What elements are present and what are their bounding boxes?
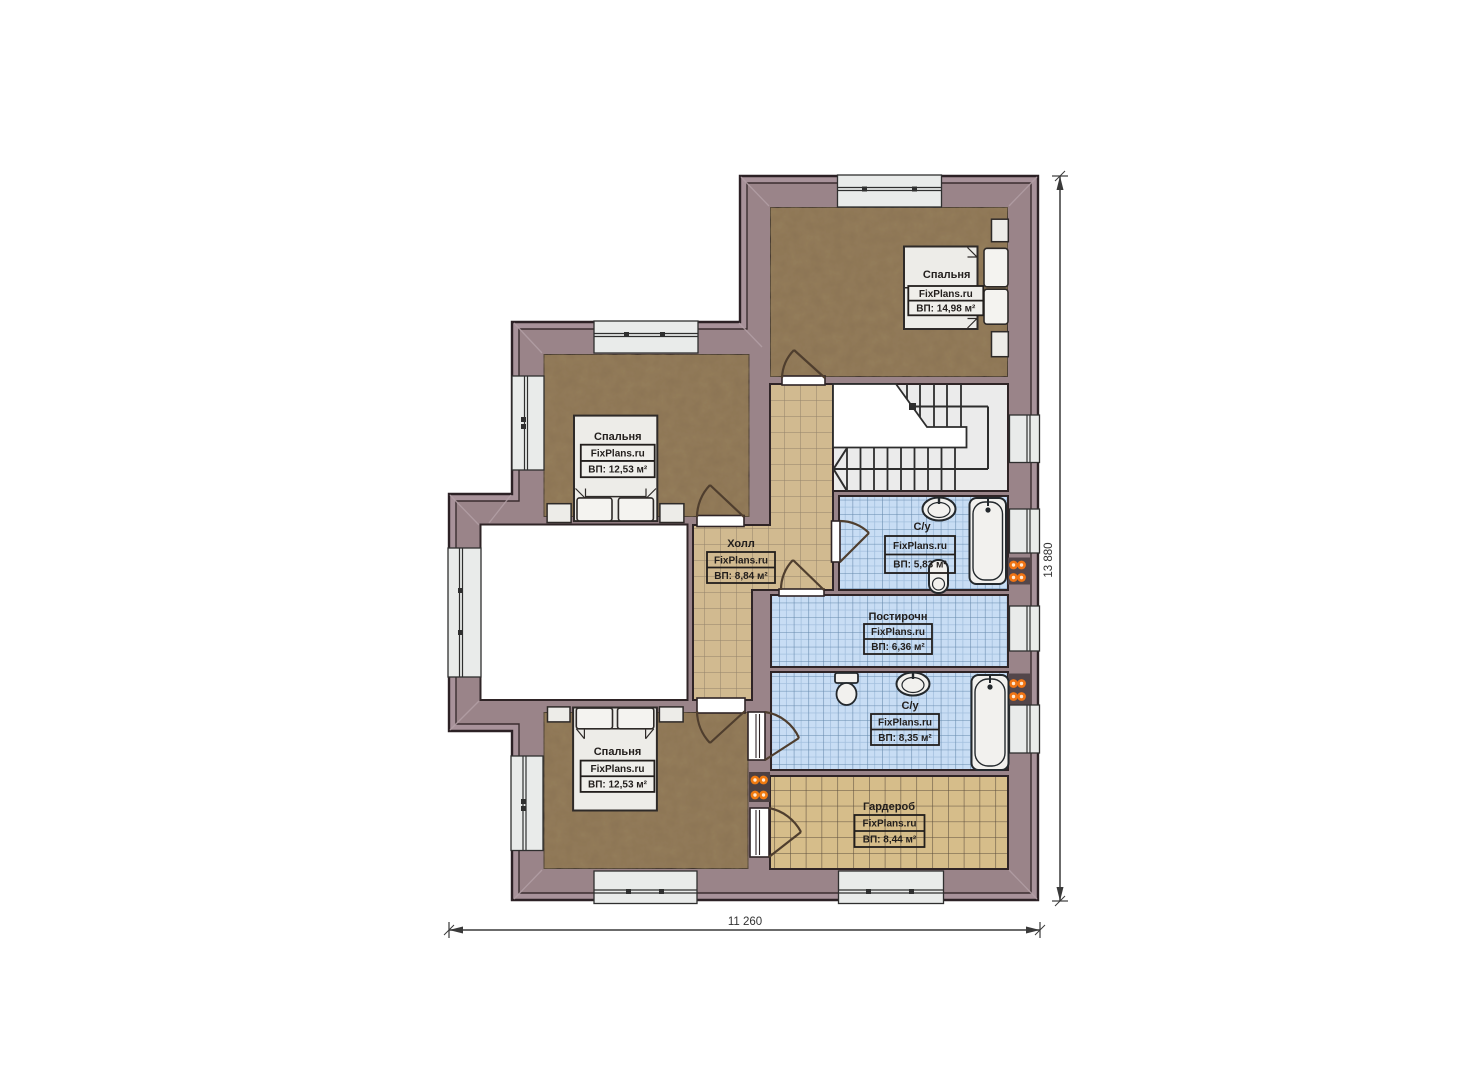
svg-text:ВП: 8,35 м²: ВП: 8,35 м² [878, 733, 932, 744]
svg-text:Постирочн: Постирочн [869, 611, 928, 623]
svg-text:ВП: 5,83 м²: ВП: 5,83 м² [893, 559, 947, 570]
svg-text:Холл: Холл [727, 538, 755, 550]
svg-text:С/у: С/у [913, 521, 931, 533]
svg-text:FixPlans.ru: FixPlans.ru [863, 819, 917, 830]
svg-text:FixPlans.ru: FixPlans.ru [591, 764, 645, 775]
svg-text:13 880: 13 880 [1043, 542, 1055, 577]
svg-text:ВП: 12,53 м²: ВП: 12,53 м² [588, 465, 648, 476]
svg-text:FixPlans.ru: FixPlans.ru [871, 627, 925, 638]
svg-text:FixPlans.ru: FixPlans.ru [919, 289, 973, 300]
svg-text:ВП: 6,36 м²: ВП: 6,36 м² [871, 642, 925, 653]
svg-text:Гардероб: Гардероб [863, 801, 915, 813]
svg-text:Спальня: Спальня [594, 746, 642, 758]
svg-text:ВП: 8,84 м²: ВП: 8,84 м² [714, 571, 768, 582]
svg-text:11 260: 11 260 [728, 916, 762, 928]
svg-text:FixPlans.ru: FixPlans.ru [893, 541, 947, 552]
svg-text:ВП: 14,98 м²: ВП: 14,98 м² [916, 303, 976, 314]
svg-text:FixPlans.ru: FixPlans.ru [714, 555, 768, 566]
svg-text:ВП: 8,44 м²: ВП: 8,44 м² [863, 835, 917, 846]
svg-text:FixPlans.ru: FixPlans.ru [878, 717, 932, 728]
svg-text:Спальня: Спальня [923, 269, 971, 281]
svg-text:Спальня: Спальня [594, 431, 642, 443]
svg-text:FixPlans.ru: FixPlans.ru [591, 448, 645, 459]
svg-text:С/у: С/у [901, 700, 919, 712]
svg-text:ВП: 12,53 м²: ВП: 12,53 м² [588, 780, 648, 791]
